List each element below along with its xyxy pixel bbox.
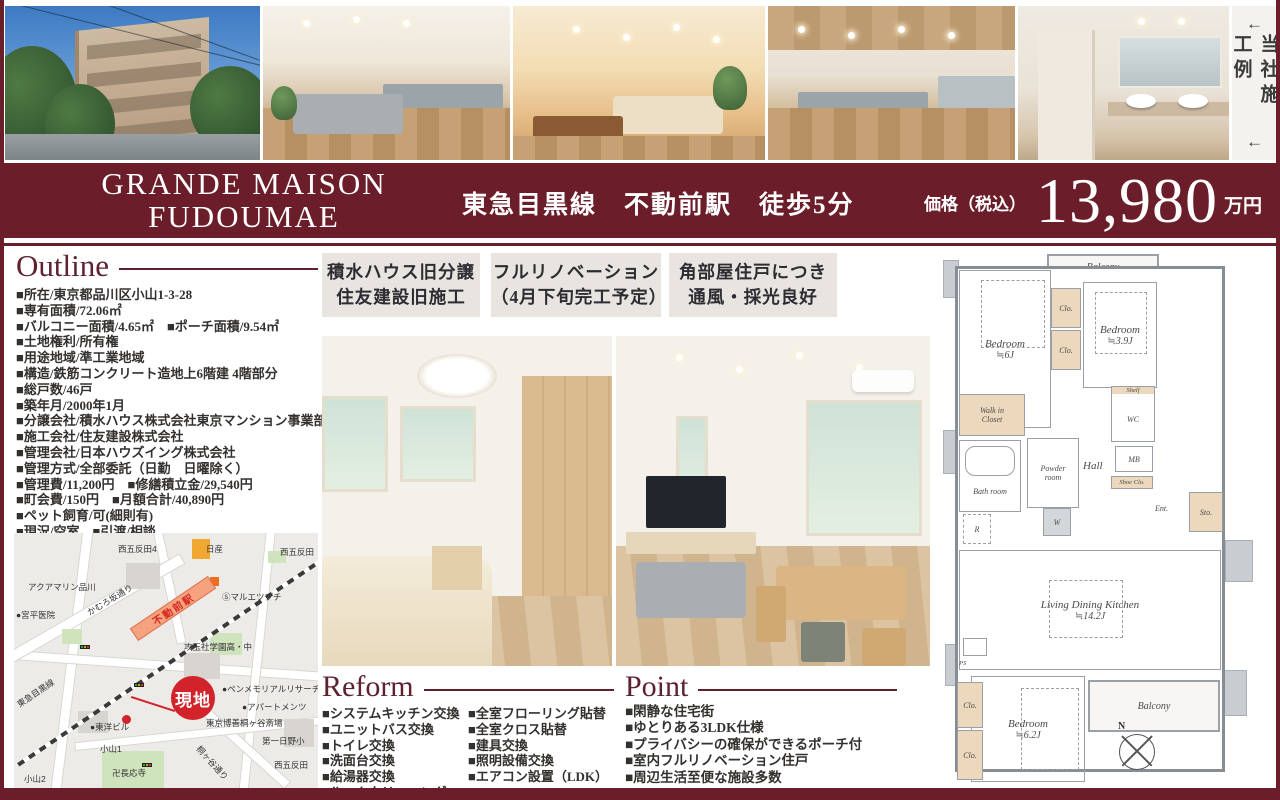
chair xyxy=(862,628,906,666)
site-pointer-line xyxy=(131,696,175,712)
outline-item: ■施工会社/住友建設株式会社 xyxy=(16,429,318,445)
map-label: 小山2 xyxy=(24,773,46,785)
outline-item: ■分譲会社/積水ハウス株式会社東京マンション事業部 xyxy=(16,413,318,429)
map-label: 日産 xyxy=(206,543,223,555)
page-border-right xyxy=(1276,0,1280,800)
reform-item: ■システムキッチン交換 xyxy=(322,706,468,722)
room-walkin-closet: Walk in Closet xyxy=(959,394,1025,436)
highlight-box-corner-unit: 角部屋住戸につき 通風・採光良好 xyxy=(669,253,837,317)
point-section: Point ■閑静な住宅街 ■ゆとりある3LDK仕様 ■プライバシーの確保ができ… xyxy=(625,670,897,786)
outline-title: Outline xyxy=(16,248,318,284)
title-rule xyxy=(119,268,318,270)
reform-column-2: ■全室フローリング貼替 ■全室クロス貼替 ■建具交換 ■照明設備交換 ■エアコン… xyxy=(468,706,608,800)
reform-item: ■全室クロス貼替 xyxy=(468,722,608,738)
reform-title: Reform xyxy=(322,670,614,704)
title-rule xyxy=(424,689,614,691)
chair xyxy=(801,622,845,662)
outline-item: ■総戸数/46戸 xyxy=(16,382,318,398)
kitchen-photo xyxy=(768,6,1015,160)
point-item: ■閑静な住宅街 xyxy=(625,704,897,720)
dining-room-photo xyxy=(513,6,765,160)
desk xyxy=(432,546,482,590)
room-mb: MB xyxy=(1115,446,1153,472)
bed-outline xyxy=(1095,292,1147,354)
room-closet-3: Clo. xyxy=(957,682,983,728)
title-band: GRANDE MAISON FUDOUMAE 東急目黒線 不動前駅 徒歩5分 価… xyxy=(4,163,1276,238)
outline-section: Outline ■所在/東京都品川区小山1-3-28 ■専有面積/72.06㎡ … xyxy=(16,248,318,556)
air-conditioner xyxy=(852,370,914,392)
property-name: GRANDE MAISON FUDOUMAE xyxy=(34,167,454,233)
reform-item: ■トイレ交換 xyxy=(322,738,468,754)
map-label: 西五反田 xyxy=(280,546,314,558)
closet-doors xyxy=(522,376,612,626)
point-title: Point xyxy=(625,670,897,704)
map-green-area xyxy=(62,629,82,644)
reform-item: ■給湯器交換 xyxy=(322,769,468,785)
outline-item: ■管理費/11,200円 ■修繕積立金/29,540円 xyxy=(16,477,318,493)
point-item: ■周辺生活至便な施設多数 xyxy=(625,770,897,786)
outline-item: ■バルコニー面積/4.65㎡ ■ポーチ面積/9.54㎡ xyxy=(16,319,318,335)
location-map: 不動前駅 西五反田4 日産 西五反田 アクアマリン品川 かむろ坂通り Ⓢマルエツ… xyxy=(14,533,318,788)
plant xyxy=(713,66,747,110)
room-shoe-closet: Shoe Clo. xyxy=(1111,476,1153,489)
map-label: 第一日野小 xyxy=(262,735,305,747)
map-label: 東京博善桐ヶ谷斎場 xyxy=(206,717,283,729)
living-dining-render-photo xyxy=(616,336,930,666)
highlight-box-seller: 積水ハウス旧分譲 住友建設旧施工 xyxy=(322,253,480,317)
street xyxy=(5,134,260,160)
price-value: 13,980 xyxy=(1036,163,1218,238)
outline-items: ■所在/東京都品川区小山1-3-28 ■専有面積/72.06㎡ ■バルコニー面積… xyxy=(16,287,318,556)
left-arrow-icon: ← xyxy=(1246,132,1263,152)
stove xyxy=(963,638,987,656)
room-hall: Hall xyxy=(1083,460,1103,472)
outline-item: ■築年月/2000年1月 xyxy=(16,398,318,414)
map-label: 西五反田4 xyxy=(118,543,157,555)
price-label: 価格（税込） xyxy=(924,190,1026,215)
point-item: ■室内フルリノベーション住戸 xyxy=(625,753,897,769)
dining-table-outline xyxy=(1049,580,1123,638)
property-name-line1: GRANDE MAISON xyxy=(34,167,454,200)
pipe-space: PS xyxy=(959,660,966,667)
reform-item: ■ユニットバス交換 xyxy=(322,722,468,738)
reform-item: ■全室フローリング貼替 xyxy=(468,706,608,722)
station-access: 東急目黒線 不動前駅 徒歩5分 xyxy=(462,185,855,221)
room-closet-4: Clo. xyxy=(957,730,983,780)
divider-line xyxy=(4,243,1276,246)
outline-item: ■町会費/150円 ■月額合計/40,890円 xyxy=(16,492,318,508)
reform-item: ■照明設備交換 xyxy=(468,753,608,769)
outline-item: ■ペット飼育/可(細則有) xyxy=(16,508,318,524)
property-name-line2: FUDOUMAE xyxy=(34,200,454,233)
tv-board xyxy=(626,532,756,554)
room-storage: Sto. xyxy=(1189,492,1223,532)
living-room-photo xyxy=(263,6,510,160)
page-border-bottom xyxy=(0,788,1280,800)
room-wc: Shelf WC xyxy=(1111,386,1155,442)
reform-item: ■エアコン設置（LDK） xyxy=(468,769,608,785)
construction-example-banner: ← 当社施工例 ← xyxy=(1232,6,1277,160)
traffic-signal-icon xyxy=(80,645,90,649)
dining-table xyxy=(776,566,906,620)
point-items: ■閑静な住宅街 ■ゆとりある3LDK仕様 ■プライバシーの確保ができるポーチ付 … xyxy=(625,704,897,786)
bathtub xyxy=(965,446,1015,476)
vanity-counter xyxy=(1108,102,1229,116)
reform-item: ■建具交換 xyxy=(468,738,608,754)
map-building xyxy=(184,653,220,679)
reform-item: ■洗面台交換 xyxy=(322,753,468,769)
page-border-left xyxy=(0,0,4,800)
washroom-photo xyxy=(1018,6,1229,160)
bedroom-render-photo xyxy=(322,336,612,666)
title-rule xyxy=(698,689,897,691)
washer-space: W xyxy=(1043,508,1071,536)
price: 価格（税込） 13,980 万円 xyxy=(924,163,1262,238)
outline-item: ■専有面積/72.06㎡ xyxy=(16,303,318,319)
sofa xyxy=(636,562,746,618)
refrigerator-space: R xyxy=(963,514,991,544)
sofa xyxy=(613,96,723,134)
reform-column-1: ■システムキッチン交換 ■ユニットバス交換 ■トイレ交換 ■洗面台交換 ■給湯器… xyxy=(322,706,468,800)
price-unit: 万円 xyxy=(1224,191,1262,218)
outline-item: ■土地権利/所有権 xyxy=(16,334,318,350)
chair xyxy=(756,586,786,642)
wash-basin xyxy=(1178,94,1208,108)
outline-item: ■管理会社/日本ハウズイング株式会社 xyxy=(16,445,318,461)
banner-text: 当社施工例 xyxy=(1228,34,1280,132)
sofa xyxy=(293,94,403,134)
window xyxy=(806,400,922,536)
floor-plan: Balcony Bedroom ≒6J Clo. Clo. Bedroom ≒3… xyxy=(943,252,1275,790)
wood-floor xyxy=(768,108,1015,160)
map-label: 東急目黒線 xyxy=(15,676,57,710)
window xyxy=(400,406,476,482)
bed-outline xyxy=(981,280,1045,348)
building-exterior-photo xyxy=(5,6,260,160)
plant xyxy=(271,86,297,120)
compass-icon: N xyxy=(1119,734,1155,770)
room-closet-1: Clo. xyxy=(1051,288,1081,328)
room-bathroom: Bath room xyxy=(959,440,1021,512)
vanity-mirror xyxy=(1118,36,1222,88)
site-marker: 現地 xyxy=(171,676,215,720)
outline-item: ■管理方式/全部委託（日勤 日曜除く） xyxy=(16,461,318,477)
highlight-box-renovation: フルリノベーション （4月下旬完工予定） xyxy=(491,253,661,317)
left-arrow-icon: ← xyxy=(1246,14,1263,34)
wood-floor xyxy=(513,136,765,160)
map-label: 卍長応寺 xyxy=(112,767,146,779)
room-powder: Powder room xyxy=(1027,438,1079,508)
wall-block xyxy=(1225,540,1253,582)
bed-outline xyxy=(1021,688,1079,770)
door xyxy=(1038,30,1095,160)
point-item: ■ゆとりある3LDK仕様 xyxy=(625,720,897,736)
map-label: ●宮平医院 xyxy=(16,609,55,621)
television xyxy=(646,476,726,528)
map-label: 桐ヶ谷通り xyxy=(194,743,231,783)
map-label: 小山1 xyxy=(100,743,122,755)
wood-ceiling xyxy=(768,6,1015,50)
outline-item: ■構造/鉄筋コンクリート造地上6階建 4階部分 xyxy=(16,366,318,382)
outline-item: ■所在/東京都品川区小山1-3-28 xyxy=(16,287,318,303)
map-label: アクアマリン品川 xyxy=(28,581,96,593)
map-label: ●ペンメモリアルリサーチ xyxy=(222,683,318,695)
room-entrance: Ent. xyxy=(1155,504,1168,513)
wash-basin xyxy=(1126,94,1156,108)
map-label: Ⓢマルエツプチ xyxy=(222,591,282,603)
window xyxy=(322,396,388,492)
map-label: 西五反田 xyxy=(274,759,308,771)
balcony-right: Balcony xyxy=(1088,680,1220,732)
site-location-dot xyxy=(122,715,131,724)
traffic-signal-icon xyxy=(134,683,144,687)
point-item: ■プライバシーの確保ができるポーチ付 xyxy=(625,737,897,753)
ceiling-light xyxy=(417,354,497,398)
flyer-page: ← 当社施工例 ← GRANDE MAISON FUDOUMAE 東急目黒線 不… xyxy=(0,0,1280,800)
map-label: ●アパートメンツ xyxy=(242,701,306,713)
outline-item: ■用途地域/準工業地域 xyxy=(16,350,318,366)
map-label: 攻玉社学園高・中 xyxy=(184,641,252,653)
reform-section: Reform ■システムキッチン交換 ■ユニットバス交換 ■トイレ交換 ■洗面台… xyxy=(322,670,614,800)
room-closet-2: Clo. xyxy=(1051,330,1081,370)
